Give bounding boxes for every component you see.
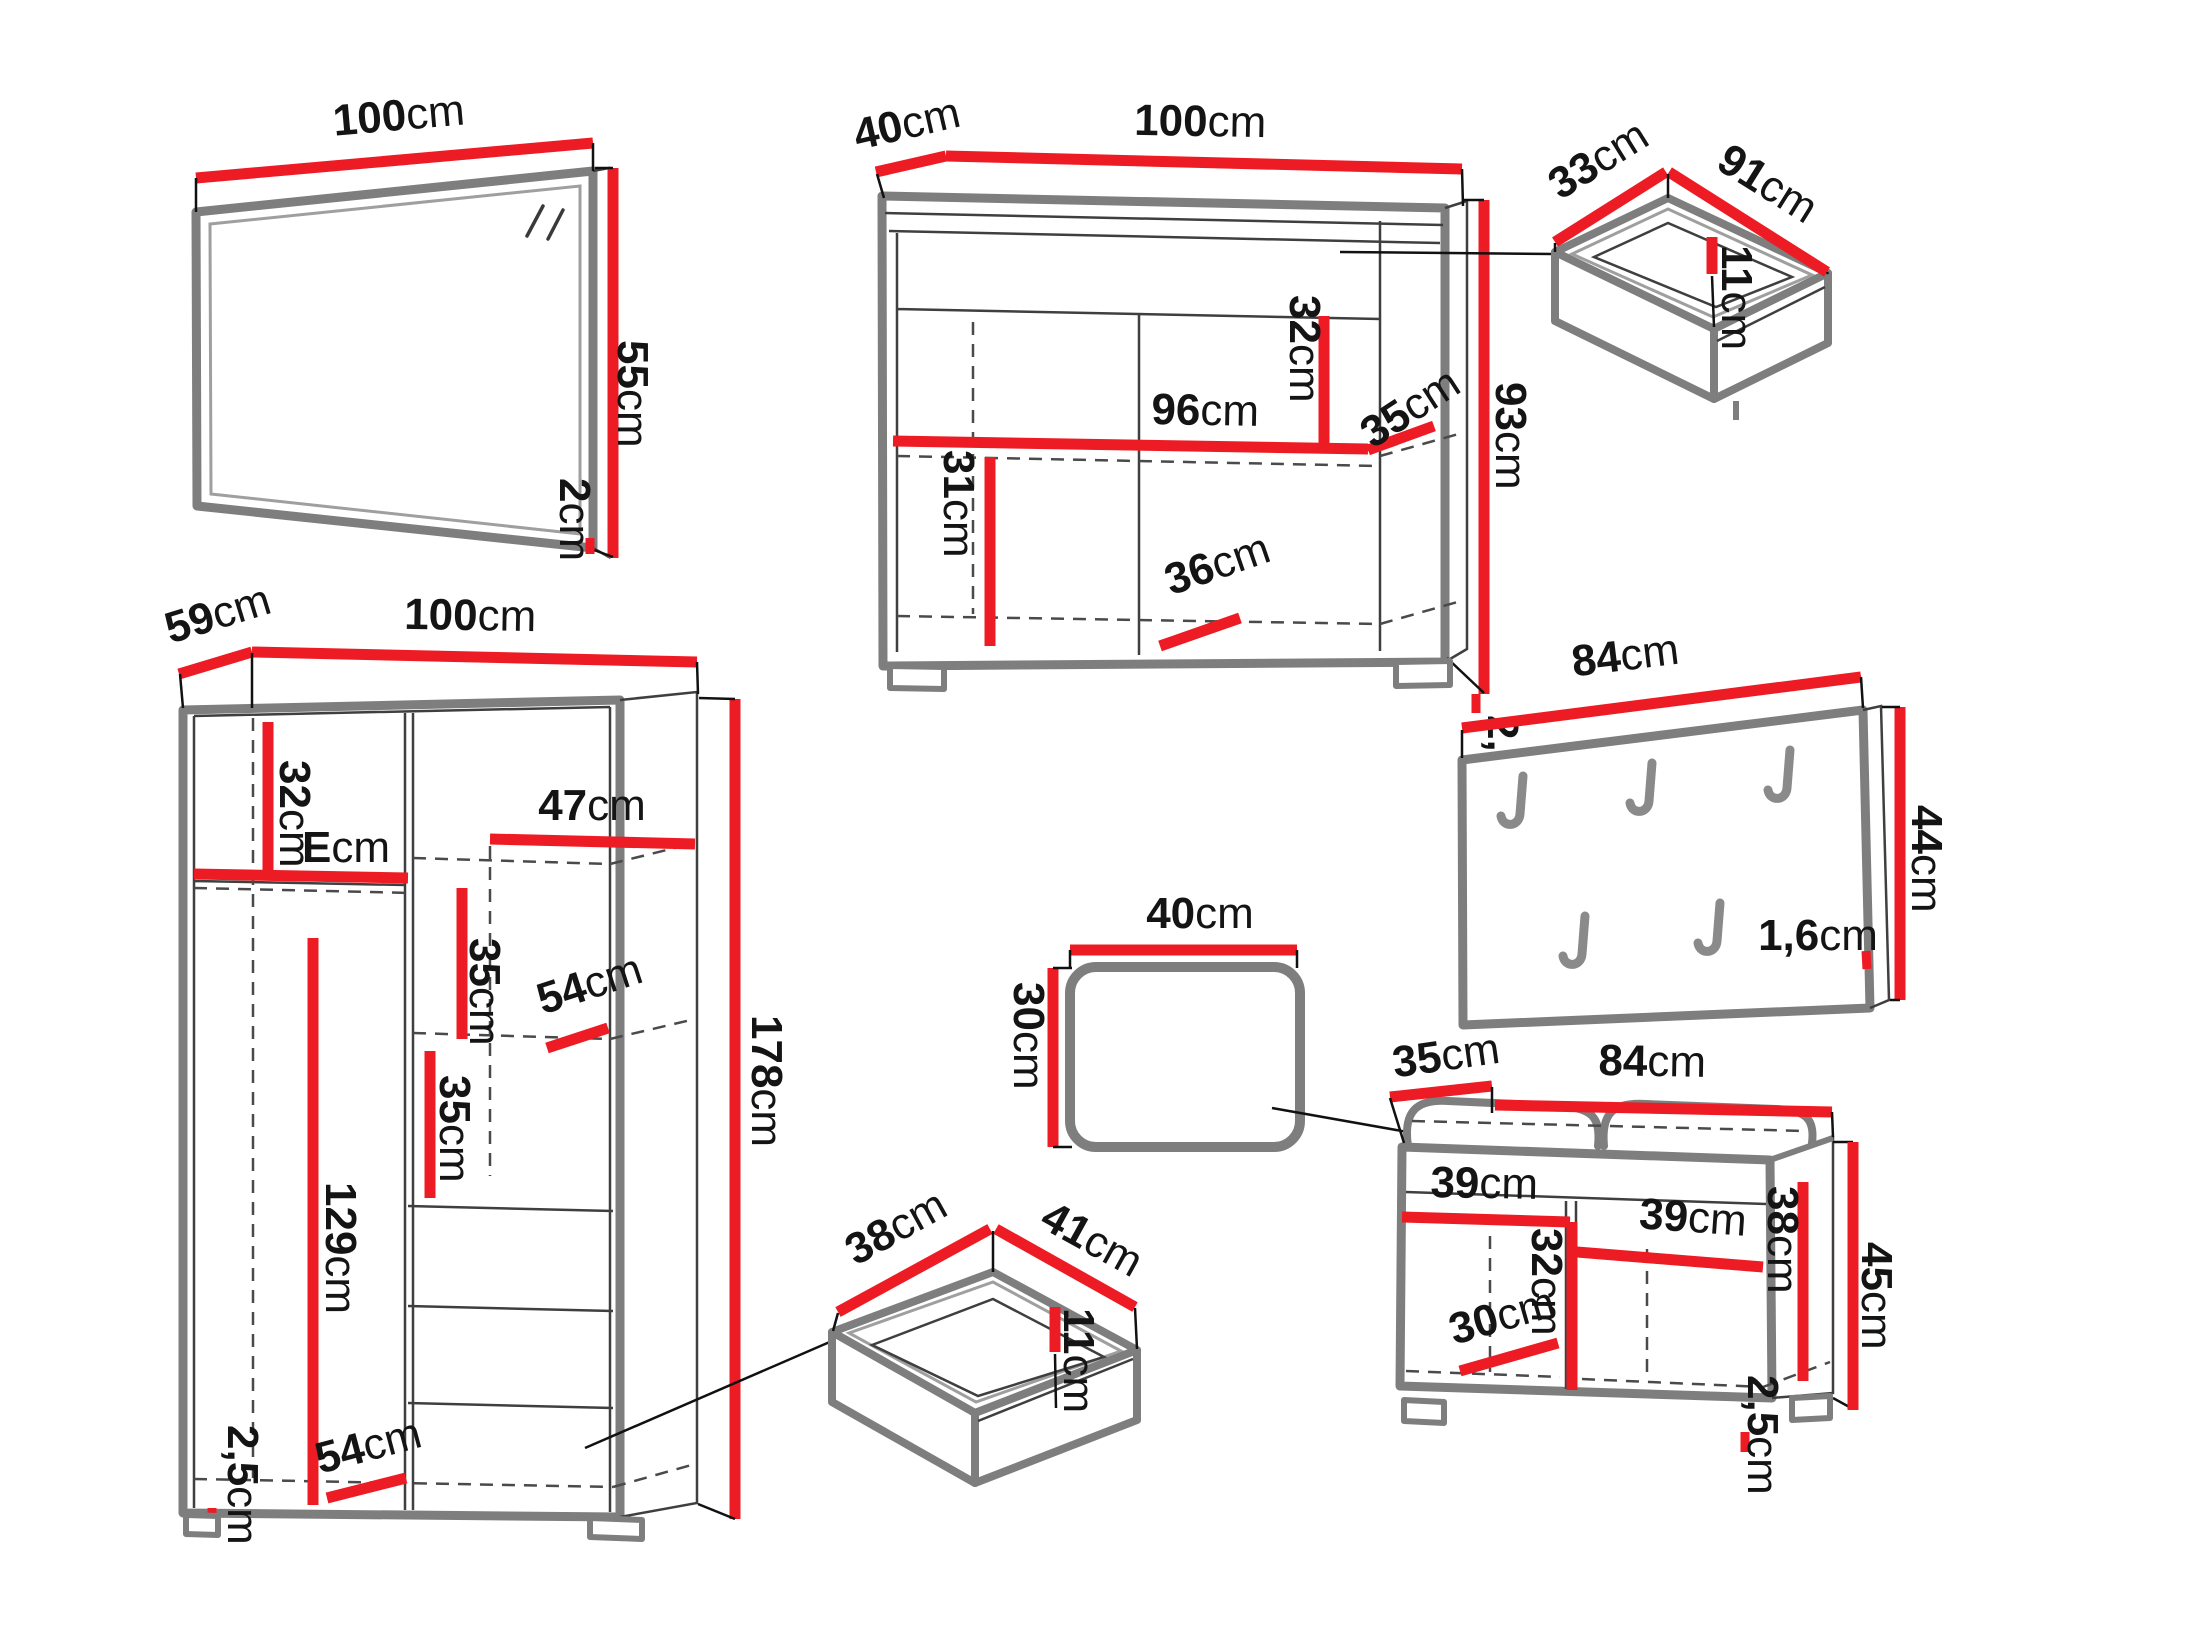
drawer-large-height-label: 11cm xyxy=(1712,245,1761,350)
coat-rack-thickness-label: 1,6cm xyxy=(1758,911,1878,960)
wardrobe-foot-right xyxy=(590,1518,642,1539)
bench-left-compartment-label: 39cm xyxy=(1430,1158,1538,1209)
drawer-small-width-label: 41cm xyxy=(1033,1192,1151,1287)
mirror-width-label: 100cm xyxy=(331,85,467,145)
mirror: 100cm 55cm 2cm xyxy=(196,85,657,561)
sideboard-width-label: 100cm xyxy=(1134,96,1267,147)
wardrobe-plinth-label: 2,5cm xyxy=(218,1425,267,1545)
diagram-canvas: 100cm 55cm 2cm 40cm 100cm 93cm 96cm 32cm… xyxy=(0,0,2200,1650)
wardrobe-lower-shelf-gap-label: 35cm xyxy=(430,1075,479,1183)
coat-rack-height-label: 44cm xyxy=(1902,805,1951,913)
mirror-thickness-label: 2cm xyxy=(550,478,599,561)
wardrobe-width-dimension-line xyxy=(252,652,697,662)
wardrobe-upper-shelf-gap-label: 35cm xyxy=(460,938,509,1046)
sideboard-foot-right xyxy=(1396,661,1450,686)
wardrobe-left-section-width-label: Ecm xyxy=(302,823,390,872)
wardrobe-width-label: 100cm xyxy=(404,590,537,641)
coat-rack: 84cm 44cm 1,6cm xyxy=(1462,625,1951,1025)
wardrobe: 59cm 100cm 178cm 32cm Ecm 47cm 35cm 54cm… xyxy=(159,575,832,1545)
sideboard-depth-label: 40cm xyxy=(849,88,965,160)
stool-width-label: 40cm xyxy=(1146,889,1254,938)
wardrobe-hanging-height-label: 129cm xyxy=(316,1182,365,1314)
wardrobe-depth-label: 59cm xyxy=(159,575,276,653)
bench-depth-dimension-line xyxy=(1390,1086,1492,1097)
sideboard-depth-dimension-line xyxy=(876,156,946,172)
bench-width-label: 84cm xyxy=(1598,1036,1706,1087)
drawer-large: 33cm 91cm 11cm xyxy=(1540,110,1828,420)
bench-width-dimension-line xyxy=(1495,1105,1832,1112)
bench-inner-height-label: 38cm xyxy=(1758,1186,1807,1294)
sideboard-width-dimension-line xyxy=(946,156,1462,169)
bench-right-compartment-label: 39cm xyxy=(1638,1189,1749,1245)
wardrobe-height-label: 178cm xyxy=(742,1015,791,1147)
sideboard-lower-inner-height-label: 31cm xyxy=(934,450,983,558)
wardrobe-right-shelf-width-label: 47cm xyxy=(538,781,646,830)
wardrobe-depth-dimension-line xyxy=(179,652,252,674)
sideboard-inner-width-label: 96cm xyxy=(1151,385,1259,436)
furniture-dimensions-diagram: 100cm 55cm 2cm 40cm 100cm 93cm 96cm 32cm… xyxy=(0,0,2200,1650)
coat-rack-panel xyxy=(1462,710,1870,1025)
stool: 40cm 30cm xyxy=(1004,889,1430,1147)
sideboard-foot-left xyxy=(890,666,944,689)
stool-body xyxy=(1070,967,1300,1147)
stool-height-label: 30cm xyxy=(1004,982,1053,1090)
wardrobe-foot-left xyxy=(186,1515,218,1535)
sideboard-upper-inner-height-label: 32cm xyxy=(1280,295,1329,403)
bench-height-label: 45cm xyxy=(1852,1242,1901,1350)
bench-foot-left xyxy=(1404,1400,1444,1423)
bench-left-compartment-dimension-line xyxy=(1402,1217,1570,1222)
wardrobe-right-shelf-width-dimension-line xyxy=(490,839,695,844)
drawer-small: 38cm 41cm 11cm xyxy=(832,1180,1151,1483)
sideboard-height-label: 93cm xyxy=(1486,382,1535,490)
bench: 35cm 84cm 39cm 39cm 32cm 38cm 30cm 45cm … xyxy=(1389,1024,1901,1495)
drawer-small-height-label: 11cm xyxy=(1054,1308,1103,1413)
bench-foot-right xyxy=(1792,1396,1830,1420)
drawer-large-width-label: 91cm xyxy=(1709,134,1826,233)
wardrobe-left-section-width-dimension-line xyxy=(194,874,408,878)
coat-rack-width-label: 84cm xyxy=(1569,625,1682,687)
bench-plinth-label: 2,5cm xyxy=(1738,1375,1787,1495)
bench-depth-label: 35cm xyxy=(1389,1024,1502,1087)
mirror-height-label: 55cm xyxy=(608,340,657,448)
sideboard: 40cm 100cm 93cm 96cm 32cm 31cm 35cm 36cm… xyxy=(849,88,1553,835)
